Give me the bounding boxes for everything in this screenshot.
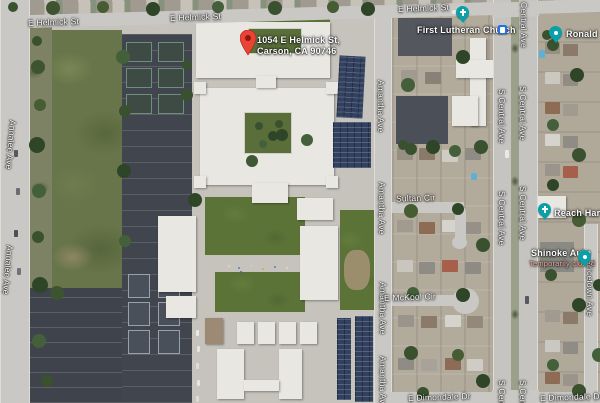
tennis-court — [158, 68, 184, 88]
poi-label-ronald[interactable]: Ronald — [566, 29, 598, 39]
street-label-s-central: S Central Ave — [518, 86, 528, 140]
street-label-helmick: E Helmick St — [170, 11, 221, 23]
red-destination-pin[interactable] — [240, 30, 256, 56]
intersection — [492, 1, 539, 17]
portable-classroom — [279, 322, 296, 344]
basketball-court — [128, 302, 150, 326]
quad-corner-tower — [326, 176, 338, 188]
church-parking-south — [396, 96, 448, 144]
poi-dot-icon — [554, 31, 558, 35]
solar-carport — [336, 55, 365, 118]
quad-corner-tower — [194, 82, 206, 94]
basketball-court — [128, 274, 150, 298]
street-label-sultan: Sultan Cir — [396, 192, 436, 203]
place-pin[interactable] — [578, 250, 591, 263]
road-mckool-culdesac — [452, 288, 479, 314]
satellite-map[interactable]: E Helmick St E Helmick St E Helmick St A… — [0, 0, 600, 403]
road-annalee — [0, 0, 30, 403]
parking-lot-southwest — [25, 288, 122, 403]
east-building — [300, 226, 338, 300]
trees — [398, 140, 408, 150]
tennis-court — [158, 42, 184, 62]
street-label-s-central: S Central Ave — [518, 186, 528, 240]
street-label-s-central: S Central Ave — [497, 191, 507, 245]
church-pin[interactable] — [538, 203, 551, 216]
dirt-patch — [344, 250, 370, 290]
place-pin[interactable] — [549, 26, 562, 39]
annex-building — [166, 296, 196, 318]
church-parking-north — [398, 18, 452, 56]
quad-corner-tower — [326, 82, 338, 94]
basketball-court — [128, 330, 150, 354]
trees — [8, 2, 18, 12]
church-chapel — [452, 96, 478, 126]
lawn — [205, 197, 305, 255]
marker-address-line1: 1054 E Helmick St, — [257, 35, 340, 46]
solar-carport — [333, 122, 371, 168]
bus-stop-icon[interactable] — [498, 25, 507, 34]
marker-address-line2: Carson, CA 90746 — [257, 46, 336, 57]
portable-classroom — [258, 322, 275, 344]
street-label-helmick: E Helmick St — [398, 2, 449, 14]
poi-dot-icon — [583, 255, 587, 259]
houses-west-block — [397, 148, 413, 160]
quad-north-wing — [256, 76, 276, 88]
tennis-court — [126, 42, 152, 62]
road-sultan-end — [452, 236, 467, 249]
solar-carport — [355, 316, 373, 402]
grass-field — [52, 30, 122, 288]
street-label-dimondale: E Dimondale Dr — [540, 391, 600, 403]
courtyard-trees — [255, 122, 263, 130]
vehicle — [525, 296, 529, 304]
street-label-amantha: Amantha Ave — [376, 80, 386, 133]
tennis-court — [126, 68, 152, 88]
basketball-court — [158, 330, 180, 354]
solar-carport — [337, 318, 351, 400]
south-building — [217, 349, 244, 399]
trees — [182, 60, 192, 70]
cross-icon — [462, 9, 464, 16]
road-sultan — [392, 202, 464, 213]
swimming-pool — [471, 173, 477, 180]
cross-icon — [544, 206, 546, 213]
tennis-court — [158, 94, 184, 114]
street-label-helmick: E Helmick St — [28, 16, 79, 28]
tennis-court — [126, 94, 152, 114]
street-label-s-central: S Central Ave — [518, 380, 528, 403]
plaza-tables — [228, 265, 230, 267]
vehicle — [505, 150, 509, 158]
lawn — [215, 272, 305, 312]
street-label-amantha: Amantha Ave — [378, 282, 388, 335]
south-building — [279, 349, 302, 399]
quad-courtyard — [244, 112, 292, 154]
church-pin[interactable] — [456, 6, 469, 19]
parked-cars — [196, 330, 199, 336]
street-label-central: Central Ave — [519, 2, 529, 48]
trees — [32, 36, 42, 46]
south-building-connector — [244, 380, 279, 391]
portable-classroom — [237, 322, 254, 344]
portable-classroom — [205, 318, 223, 344]
swimming-pool — [539, 50, 545, 58]
street-label-s-central: S Central Ave — [497, 380, 507, 403]
street-label-amantha: Amantha Ave — [377, 182, 387, 235]
poi-label-reach-hart[interactable]: Reach Hart — [554, 208, 600, 218]
east-building — [297, 198, 333, 220]
church-building-wing — [456, 60, 496, 78]
street-label-amantha: Amantha Ave — [378, 356, 388, 403]
quad-south-wing — [252, 183, 288, 203]
street-label-s-central: S Central Ave — [497, 89, 507, 143]
quad-corner-tower — [194, 176, 206, 188]
portable-classroom — [300, 322, 317, 344]
street-label-mckool: E McKool Cir — [384, 291, 436, 303]
street-label-dimondale: E Dimondale Dr — [408, 391, 471, 403]
gym-building — [158, 216, 196, 292]
